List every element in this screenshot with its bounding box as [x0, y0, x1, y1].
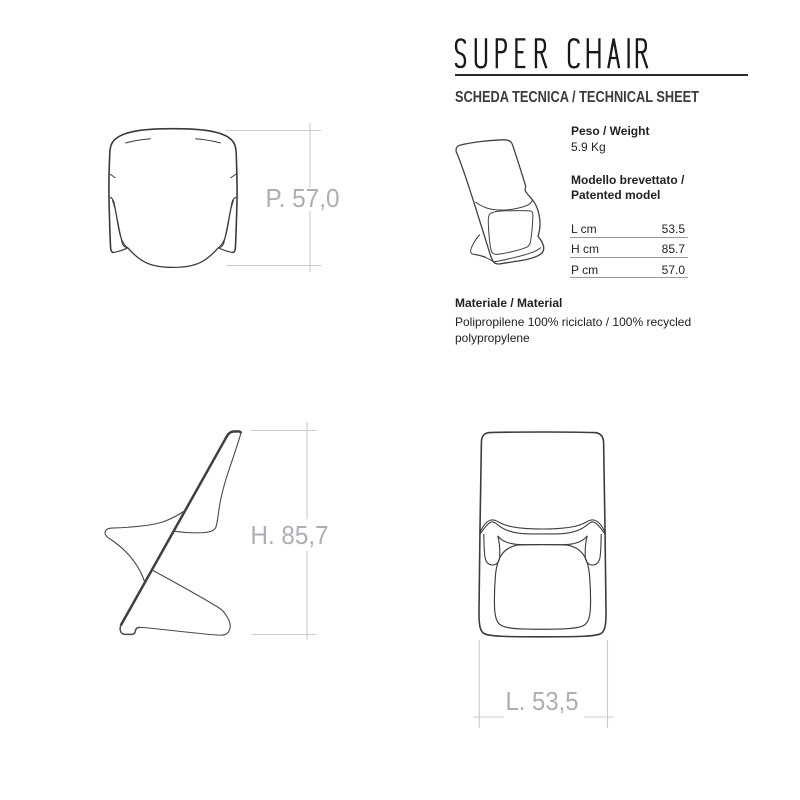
svg-text:L. 53,5: L. 53,5	[506, 686, 579, 716]
svg-text:H. 85,7: H. 85,7	[251, 520, 329, 550]
svg-text:P. 57,0: P. 57,0	[266, 183, 340, 213]
